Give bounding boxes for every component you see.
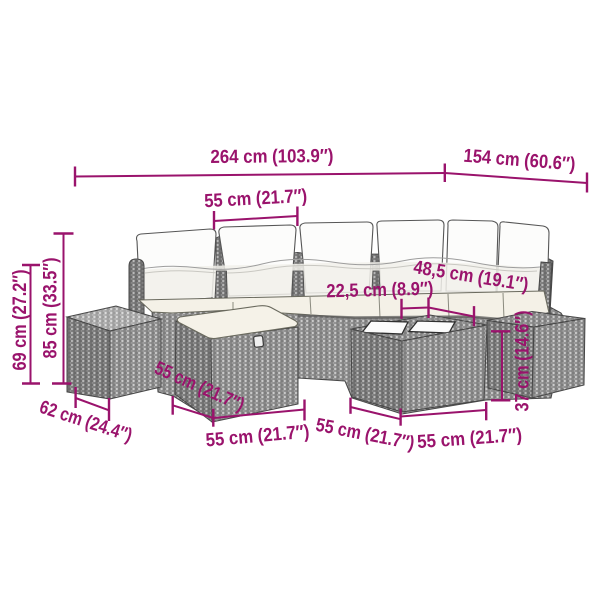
svg-text:264 cm (103.9″): 264 cm (103.9″) — [210, 146, 333, 168]
svg-text:37 cm (14.6″): 37 cm (14.6″) — [513, 311, 534, 412]
svg-text:22,5 cm (8.9″): 22,5 cm (8.9″) — [326, 279, 434, 303]
svg-text:69 cm (27.2″): 69 cm (27.2″) — [10, 270, 31, 371]
svg-text:85 cm (33.5″): 85 cm (33.5″) — [41, 258, 62, 359]
